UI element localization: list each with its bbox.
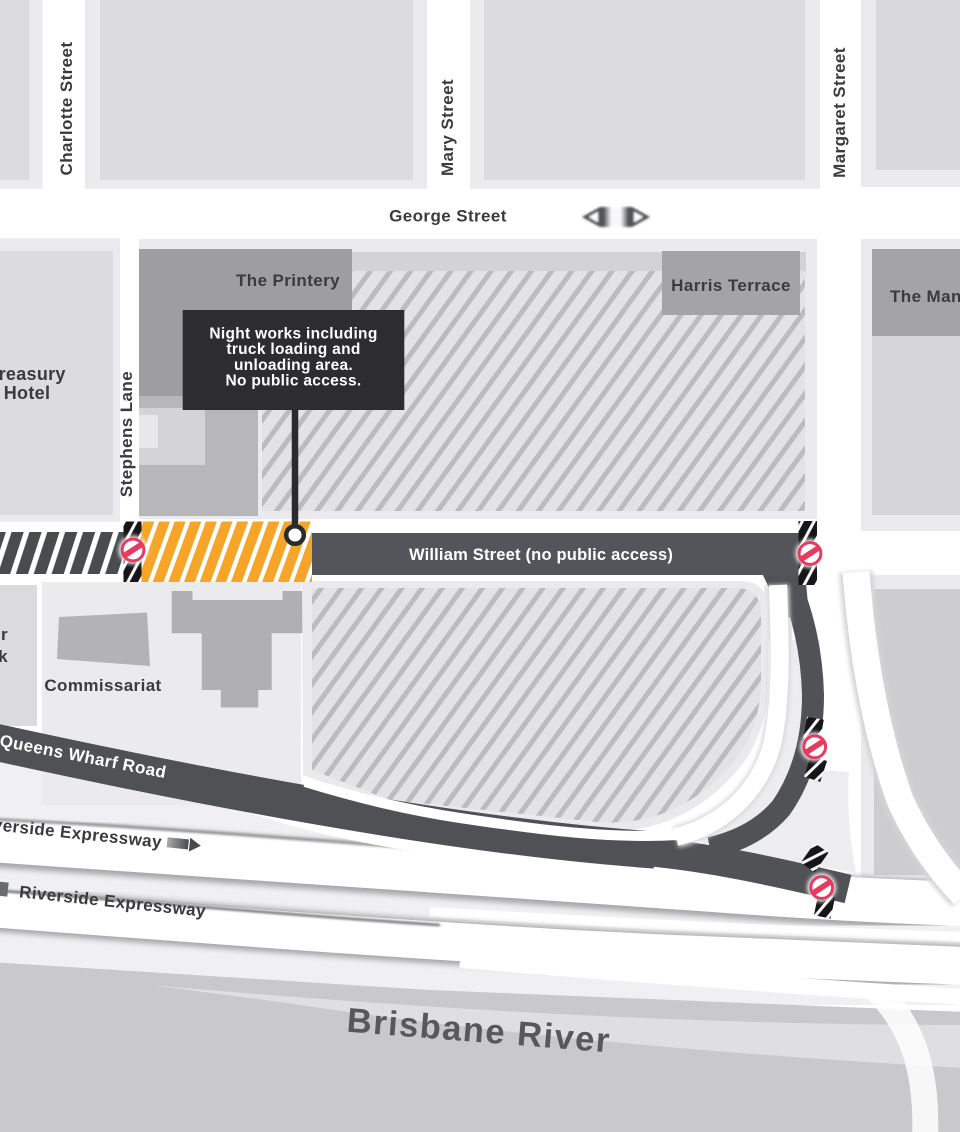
svg-text:Treasury: Treasury: [0, 364, 66, 384]
svg-text:unloading area.: unloading area.: [234, 357, 353, 374]
svg-text:William Street (no public acce: William Street (no public access): [409, 546, 673, 564]
svg-text:George Street: George Street: [389, 207, 507, 226]
svg-text:Night works including: Night works including: [209, 326, 377, 343]
svg-text:Charlotte Street: Charlotte Street: [57, 42, 76, 176]
svg-text:Commissariat: Commissariat: [44, 676, 161, 695]
svg-text:r: r: [1, 625, 8, 644]
svg-text:Stephens Lane: Stephens Lane: [117, 371, 136, 497]
svg-text:Margaret Street: Margaret Street: [830, 47, 849, 178]
svg-text:truck loading and: truck loading and: [226, 341, 360, 358]
svg-text:k: k: [0, 647, 8, 666]
svg-text:Hotel: Hotel: [4, 383, 51, 403]
svg-text:Mary Street: Mary Street: [438, 79, 457, 176]
svg-text:The Mansions: The Mansions: [890, 287, 960, 306]
svg-text:The Printery: The Printery: [236, 271, 340, 290]
svg-text:No public access.: No public access.: [225, 373, 361, 390]
svg-text:Harris Terrace: Harris Terrace: [671, 276, 791, 295]
